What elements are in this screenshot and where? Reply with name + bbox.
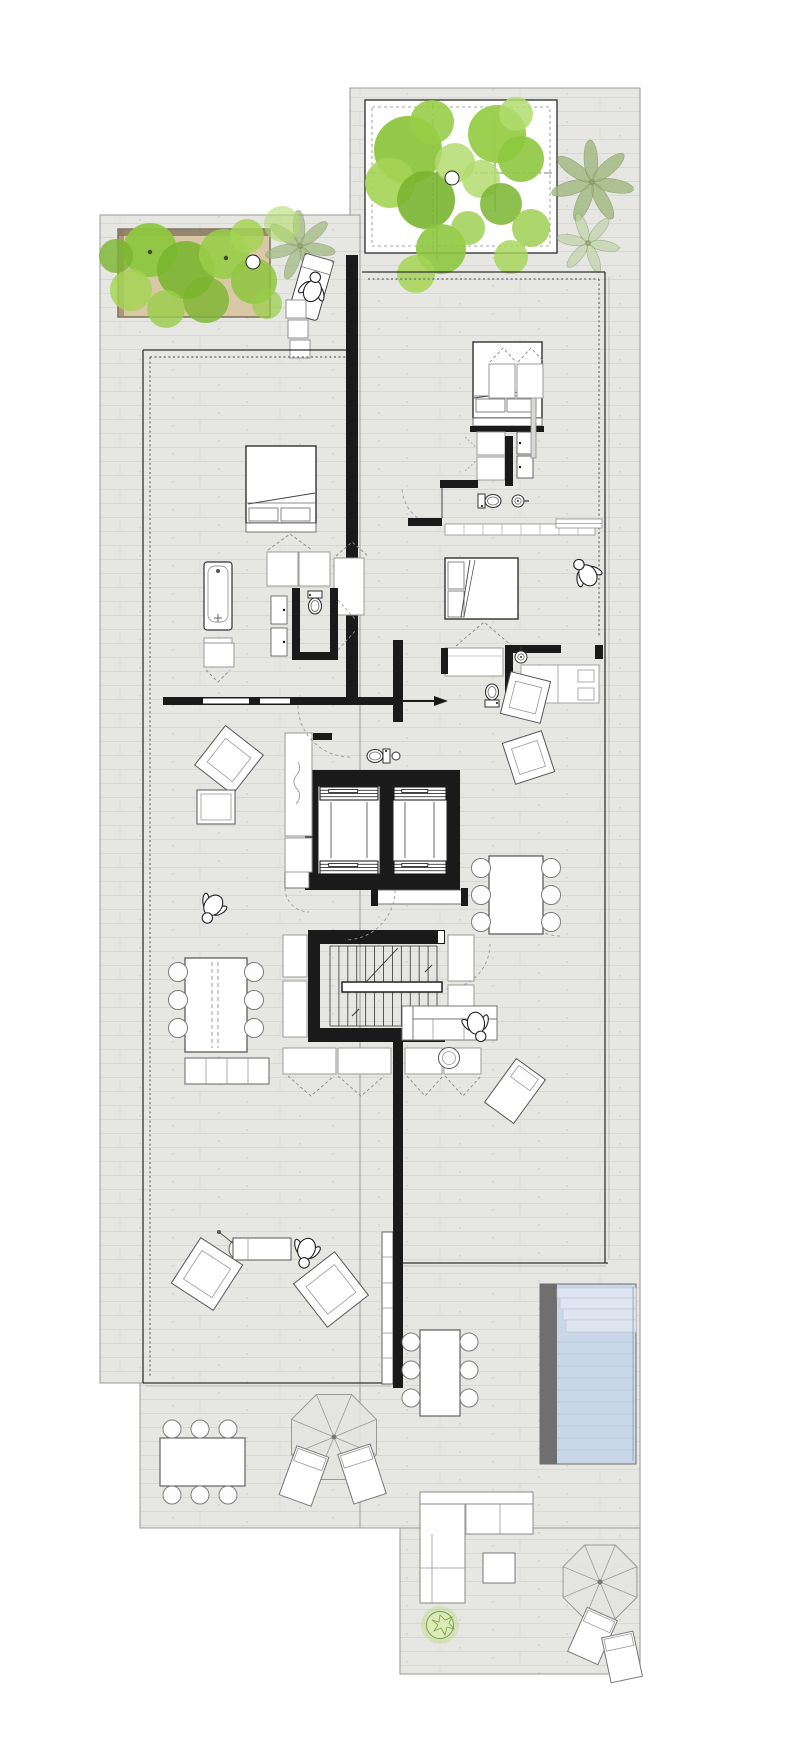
elevator-wall-mid — [380, 786, 393, 876]
tree-canopy — [499, 97, 533, 131]
dining-chair — [169, 1019, 188, 1038]
shrub — [230, 219, 264, 253]
dining-chair — [163, 1420, 181, 1438]
dining-chair — [245, 991, 264, 1010]
wall-cap — [461, 888, 468, 906]
dining-table — [420, 1330, 460, 1416]
side-table — [286, 300, 306, 318]
bath-cabinet — [299, 552, 330, 586]
door-handle — [519, 442, 521, 444]
floor-plan — [0, 0, 788, 1764]
dining-chair — [472, 886, 491, 905]
tree-canopy — [498, 136, 544, 182]
dining-chair — [402, 1389, 420, 1407]
wall-valve — [392, 752, 400, 760]
bed-pillow — [476, 399, 505, 412]
wc-wall — [292, 652, 338, 660]
dining-chair — [219, 1420, 237, 1438]
wall-stub — [441, 648, 448, 674]
tree-canopy — [512, 209, 550, 247]
stair-closet — [283, 981, 307, 1037]
stair-wall-top — [312, 930, 445, 944]
door-handle — [519, 466, 521, 468]
shrub — [110, 269, 152, 311]
dining-chair — [460, 1333, 478, 1351]
palm-plant — [297, 243, 303, 249]
elevator-door-sill — [329, 864, 358, 867]
stair-rail — [342, 982, 442, 992]
armchair — [197, 790, 235, 824]
dining-chair — [219, 1486, 237, 1504]
wall-stub — [313, 733, 332, 740]
shrub — [264, 206, 300, 242]
side-table — [290, 340, 310, 358]
sink — [517, 500, 519, 502]
tree-grate — [445, 171, 459, 185]
toilet — [496, 702, 498, 704]
bath-cabinet — [267, 552, 298, 586]
dining-chair — [163, 1486, 181, 1504]
bath-cabinet — [445, 648, 503, 676]
bed-pillow — [281, 508, 310, 521]
wardrobe — [283, 1048, 336, 1074]
bed-pillow — [448, 562, 464, 589]
wc-wall — [292, 588, 300, 658]
corridor-sill — [377, 890, 462, 904]
shrub-trunk — [224, 256, 228, 260]
tree-canopy — [397, 255, 435, 293]
sink — [520, 656, 522, 658]
spine-wall-lower — [393, 1042, 403, 1232]
sofa-back — [420, 1492, 533, 1504]
tree-canopy — [410, 100, 454, 144]
dining-chair — [542, 886, 561, 905]
shrub — [252, 289, 282, 319]
dining-chair — [191, 1486, 209, 1504]
dining-table — [160, 1438, 245, 1486]
pool-step — [560, 1298, 636, 1309]
door-handle — [283, 609, 285, 611]
corridor-wall — [393, 640, 403, 722]
dining-chair — [460, 1361, 478, 1379]
wc-wall — [330, 588, 338, 658]
wardrobe — [338, 1048, 391, 1074]
planter-grate — [246, 255, 260, 269]
toilet — [309, 594, 311, 596]
wall-stub — [440, 480, 478, 488]
dining-chair — [169, 963, 188, 982]
dining-chair — [169, 991, 188, 1010]
side-table — [288, 320, 308, 338]
coffee-table-round — [439, 1048, 460, 1069]
party-wall — [346, 255, 358, 700]
tree-canopy — [451, 211, 485, 245]
toilet — [481, 505, 483, 507]
dining-chair — [472, 913, 491, 932]
sofa-chaise — [420, 1504, 465, 1603]
shrub — [183, 277, 229, 323]
tree-canopy — [494, 240, 528, 274]
stair-closet — [448, 935, 474, 981]
elevator-door-sill — [402, 864, 428, 867]
elevator-door-sill — [329, 790, 358, 793]
daybed — [233, 1238, 291, 1260]
sliding-door-leaf — [203, 699, 249, 704]
palm-plant — [585, 240, 591, 246]
door-handle — [283, 641, 285, 643]
sofa-arm — [402, 1006, 413, 1040]
elevator-door-sill — [402, 790, 428, 793]
elevator-wall-right — [447, 770, 460, 890]
wall-stub — [595, 645, 603, 659]
parasol — [598, 1580, 603, 1585]
wardrobe — [477, 432, 505, 455]
core-door — [285, 872, 309, 888]
dining-chair — [402, 1333, 420, 1351]
bed-headboard — [246, 523, 316, 532]
armchair — [204, 643, 234, 667]
stair-closet — [283, 935, 307, 977]
hall-cabinet — [285, 838, 312, 872]
parasol — [332, 1435, 337, 1440]
stair-wall-left — [308, 930, 320, 1042]
stair-door-gap — [438, 931, 444, 943]
dining-table — [489, 856, 543, 934]
pool-deck-edge — [540, 1284, 557, 1464]
palm-plant — [589, 179, 595, 185]
dining-chair — [191, 1420, 209, 1438]
bathtub-faucet — [216, 569, 220, 573]
dining-chair — [460, 1389, 478, 1407]
dining-table — [185, 958, 247, 1052]
wardrobe — [489, 364, 515, 398]
dining-chair — [245, 963, 264, 982]
floor-lamp-base — [217, 1230, 221, 1234]
coffee-table — [483, 1553, 515, 1583]
wall-stub — [408, 518, 442, 526]
wall-cap — [371, 888, 378, 906]
sliding-door-leaf — [260, 699, 290, 704]
spine-wall-bottom — [393, 1232, 403, 1388]
dining-chair — [542, 913, 561, 932]
dining-chair — [472, 859, 491, 878]
hall-cabinet — [285, 733, 312, 836]
wardrobe — [517, 364, 543, 398]
dining-chair — [402, 1361, 420, 1379]
toilet — [385, 750, 387, 752]
wardrobe — [477, 457, 505, 480]
wardrobe — [405, 1048, 442, 1074]
pool-step — [566, 1320, 636, 1332]
bath-cabinet — [334, 558, 364, 615]
shrub — [99, 239, 133, 273]
elevator-wall-top — [305, 770, 460, 786]
elevator-wall-bottom — [318, 874, 460, 890]
shrub-trunk — [148, 250, 152, 254]
wall-stub — [505, 436, 513, 486]
dining-chair — [245, 1019, 264, 1038]
floor-plan-canvas — [0, 0, 788, 1764]
pool-step — [557, 1288, 636, 1298]
dining-chair — [542, 859, 561, 878]
bed-pillow — [249, 508, 278, 521]
shrub — [147, 290, 185, 328]
pool-step — [563, 1309, 636, 1320]
